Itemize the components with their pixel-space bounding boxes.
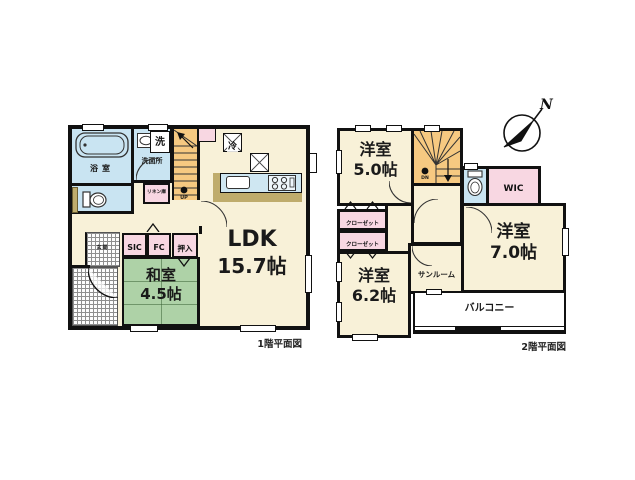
- door-leaf: [309, 153, 317, 173]
- room-wic-label: WIC: [504, 184, 524, 194]
- window: [336, 150, 342, 174]
- room-bed62-size: 6.2帖: [337, 286, 411, 306]
- washing-machine-label: 洗: [155, 137, 165, 148]
- storage-strip: [72, 187, 78, 213]
- door-arc-washroom: [136, 158, 158, 180]
- room-washitsu-label: 和室 4.5帖: [122, 266, 200, 304]
- door-arc-bed7: [466, 207, 492, 233]
- room-bed7-size: 7.0帖: [461, 243, 566, 264]
- window: [148, 124, 168, 131]
- room-bed62-name: 洋室: [337, 266, 411, 286]
- room-ldk-size: 15.7帖: [200, 254, 304, 279]
- window: [336, 302, 342, 322]
- door-arc-ldk: [201, 201, 227, 227]
- wall-stub: [199, 226, 202, 234]
- closet-sic: SIC: [122, 233, 147, 257]
- room-washitsu-name: 和室: [122, 266, 200, 285]
- cabinet-top: [198, 129, 216, 142]
- closet-2f-2-label: クローゼット: [346, 242, 379, 248]
- room-ldk-label: LDK 15.7帖: [200, 226, 304, 279]
- folding-door-mark: [344, 251, 357, 259]
- window: [424, 125, 440, 132]
- stove-icon: [268, 175, 296, 191]
- kitchen-sink: [226, 176, 250, 189]
- folding-door-mark: [177, 258, 191, 267]
- closet-fc-label: FC: [153, 243, 164, 252]
- window: [336, 262, 342, 282]
- washing-machine-box: 洗: [150, 131, 170, 153]
- fridge-box: 冷: [223, 133, 242, 152]
- folding-door-mark: [366, 201, 379, 209]
- area-genkan-label: 玄関: [85, 245, 120, 251]
- closet-oshiire-label: 押入: [178, 244, 193, 253]
- compass-north-label: N: [540, 97, 553, 113]
- closet-2f-1-label: クローゼット: [346, 221, 379, 227]
- room-wic: WIC: [486, 166, 541, 206]
- door-arc-entrance: [88, 268, 118, 298]
- room-bed5-name: 洋室: [337, 140, 414, 160]
- window: [464, 163, 478, 170]
- window: [130, 325, 158, 332]
- window: [386, 125, 402, 132]
- room-bed62-label: 洋室 6.2帖: [337, 266, 411, 306]
- room-bed5-size: 5.0帖: [337, 160, 414, 180]
- floor2-caption: 2階平面図: [480, 339, 566, 353]
- floor1-caption: 1階平面図: [216, 336, 302, 350]
- closet-2f-1: クローゼット: [337, 209, 388, 231]
- room-washitsu-size: 4.5帖: [122, 285, 200, 304]
- stairs-1f-treads: [174, 129, 197, 200]
- door-arc-bed5: [389, 181, 411, 203]
- cupboard-box: [250, 153, 269, 172]
- balcony-label: バルコニー: [413, 303, 566, 316]
- stairs-up-label: UP: [172, 195, 196, 201]
- room-ldk-name: LDK: [200, 226, 304, 254]
- porch-wall: [72, 265, 90, 268]
- fridge-label: 冷: [227, 142, 238, 152]
- room-sunroom-label: サンルーム: [408, 270, 465, 279]
- door-arc-hall2: [414, 199, 438, 223]
- window: [355, 125, 371, 132]
- stairs-dn-label: DN: [417, 176, 433, 182]
- closet-fc: FC: [147, 233, 171, 257]
- balcony-railing-post: [455, 327, 501, 332]
- window: [426, 289, 442, 295]
- window: [562, 228, 569, 256]
- closet-oshiire: 押入: [172, 233, 198, 258]
- toilet-icon-1f: [82, 188, 108, 212]
- closet-linen-label: リネン庫: [143, 190, 170, 196]
- folding-door-mark: [146, 223, 160, 232]
- toilet-icon-2f: [466, 170, 484, 200]
- window: [305, 255, 312, 293]
- folding-door-mark: [366, 251, 379, 259]
- room-bed5-label: 洋室 5.0帖: [337, 140, 414, 180]
- door-arc-sunroom: [412, 246, 432, 266]
- room-bath-label: 浴室: [74, 164, 130, 174]
- window: [352, 334, 378, 341]
- window: [82, 124, 104, 131]
- closet-2f-2: クローゼット: [337, 230, 388, 252]
- window: [240, 325, 276, 332]
- folding-door-mark: [344, 201, 357, 209]
- floorplan-page: { "f1": { "caption": "1階平面図", "ldk": {"n…: [0, 0, 635, 480]
- closet-sic-label: SIC: [127, 243, 142, 252]
- bathtub-icon: [75, 132, 129, 158]
